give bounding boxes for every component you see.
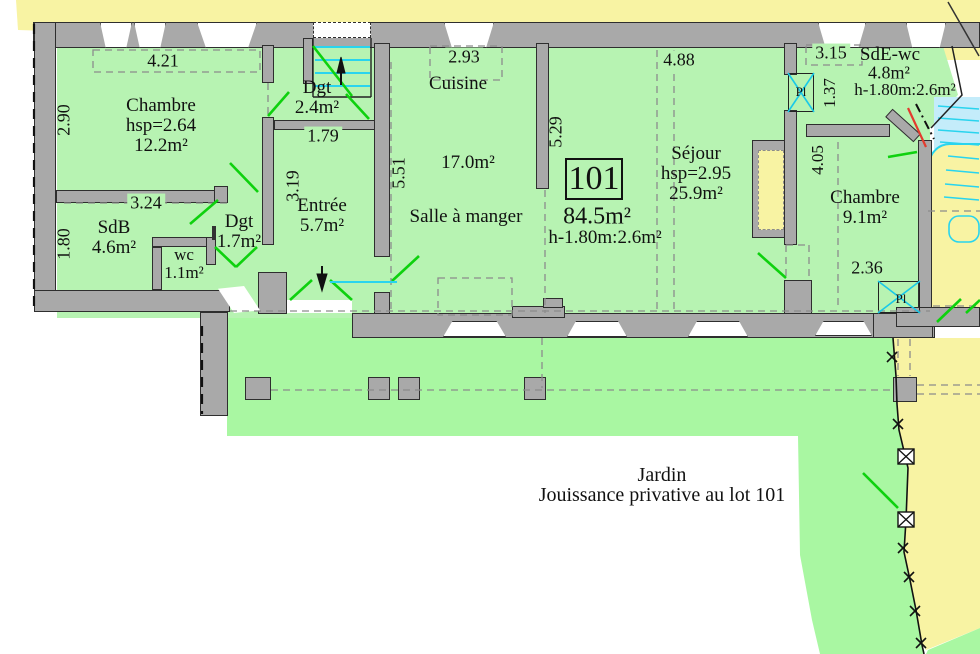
dim-cuisine-depth: 5.51 <box>389 157 410 189</box>
room-label-entree: Entrée 5.7m² <box>297 196 347 236</box>
dim-chambre1-width: 4.21 <box>144 52 182 71</box>
room-name: Dgt <box>295 78 339 98</box>
garden-label: Jardin Jouissance privative au lot 101 <box>539 465 786 505</box>
room-area: 1.1m² <box>164 264 204 282</box>
room-label-cuisine: Cuisine <box>429 74 487 94</box>
room-label-chambre1: Chambre hsp=2.64 12.2m² <box>126 96 196 156</box>
lot-number: 101 <box>569 160 620 198</box>
dim-chambre2-width: 2.36 <box>851 259 883 278</box>
closet-label-2: Pl <box>896 292 907 306</box>
room-name: Entrée <box>297 196 347 216</box>
room-label-sejour: Séjour hsp=2.95 25.9m² <box>661 144 731 204</box>
dim-cuisine-width: 2.93 <box>445 48 483 67</box>
room-label-chambre2: Chambre 9.1m² <box>830 188 900 228</box>
room-label-dgt1: Dgt 1.7m² <box>217 212 261 252</box>
room-area: 4.6m² <box>92 238 136 258</box>
room-area-cuisine: 17.0m² <box>441 153 495 173</box>
dim-sdb-depth: 1.80 <box>54 228 75 260</box>
dim-sde-depth: 1.37 <box>820 78 840 108</box>
lot-area: 84.5m² <box>563 204 631 229</box>
lot-number-box: 101 <box>565 158 623 200</box>
room-height-sde-wc: h-1.80m:2.6m² <box>854 81 955 99</box>
dim-sde-width: 3.15 <box>812 44 850 63</box>
room-name: Dgt <box>217 212 261 232</box>
room-area: 1.7m² <box>217 232 261 252</box>
room-ceiling: hsp=2.95 <box>661 164 731 184</box>
room-ceiling: hsp=2.64 <box>126 116 196 136</box>
closet-label-1: Pl <box>796 85 807 99</box>
room-area: 5.7m² <box>297 216 347 236</box>
room-name: Chambre <box>126 96 196 116</box>
dim-sejour-depth: 5.29 <box>546 116 567 148</box>
room-area: 25.9m² <box>661 184 731 204</box>
dim-sejour-width: 4.88 <box>660 51 698 70</box>
room-area: 9.1m² <box>830 208 900 228</box>
room-area: 2.4m² <box>295 98 339 118</box>
room-label-sdb: SdB 4.6m² <box>92 218 136 258</box>
garden-subtitle: Jouissance privative au lot 101 <box>539 485 786 505</box>
dim-chambre1-depth: 2.90 <box>54 104 75 136</box>
room-name: wc <box>164 246 204 264</box>
room-label-wc: wc 1.1m² <box>164 246 204 282</box>
dim-entree-width: 1.79 <box>304 127 342 146</box>
neighbor-stair-steps <box>938 106 979 242</box>
floor-plan-canvas: 4.21 2.90 Chambre hsp=2.64 12.2m² 3.24 1… <box>0 0 980 654</box>
garden-title: Jardin <box>539 465 786 485</box>
dim-sdb-width: 3.24 <box>127 194 165 213</box>
room-label-dgt2: Dgt 2.4m² <box>295 78 339 118</box>
entry-direction-arrow <box>317 266 327 291</box>
lot-height-note: h-1.80m:2.6m² <box>548 228 661 248</box>
room-name: SdB <box>92 218 136 238</box>
room-name: Séjour <box>661 144 731 164</box>
room-name: Chambre <box>830 188 900 208</box>
room-area: 12.2m² <box>126 136 196 156</box>
dim-chambre2-depth: 4.05 <box>808 145 828 175</box>
room-label-salle-a-manger: Salle à manger <box>410 207 523 227</box>
red-boundary-line <box>908 108 926 147</box>
